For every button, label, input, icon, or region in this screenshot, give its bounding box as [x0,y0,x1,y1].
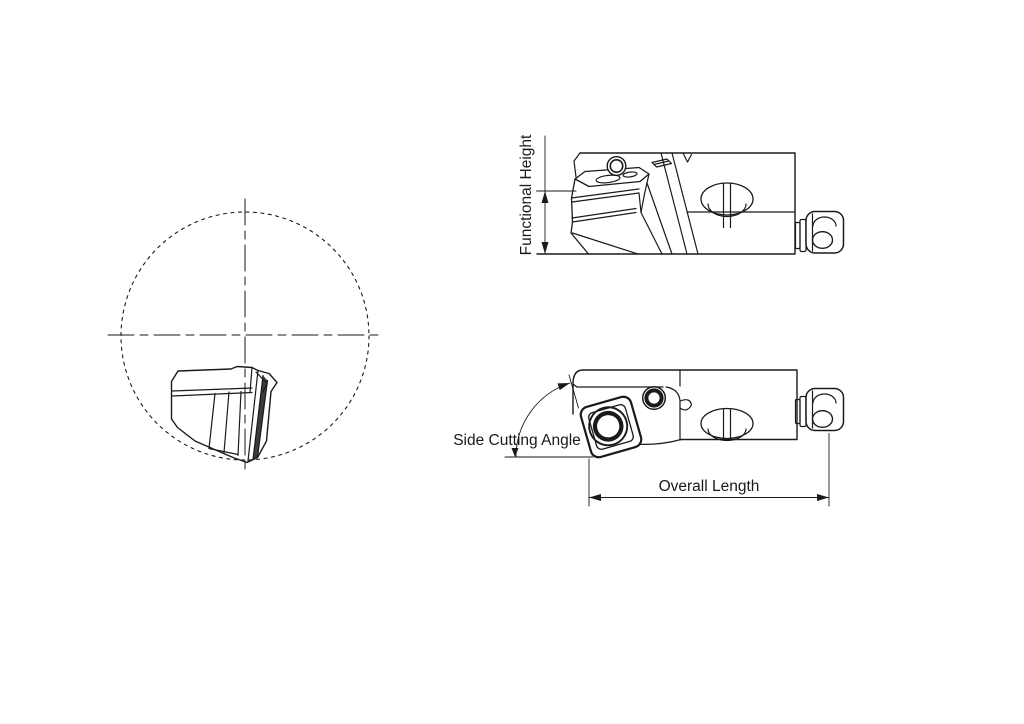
detail-line [173,393,253,397]
pocket-curve [666,387,680,440]
arrowhead-arc [558,383,571,390]
screw-washer [800,220,806,252]
arrowhead-left [589,494,601,501]
wedge-line [641,213,662,255]
insert-band [572,193,639,202]
functional-height-dimension [537,136,577,254]
arrowhead-down [512,448,519,457]
clamp-edge [224,392,229,453]
end-view [108,199,383,474]
counterbore-outer [701,183,753,215]
side-view: Functional Height [518,134,844,255]
screw-washer [796,223,801,249]
arrowhead-down [542,242,549,254]
side-body-left-edge [574,153,580,177]
arrowhead-up [542,191,549,203]
shim-band [572,209,636,219]
adjust-knob [806,389,844,431]
plan-view: Side Cutting Angle Overall Length [453,370,843,506]
plan-step-line [573,384,663,387]
detail-line [639,193,641,213]
screw-washer [800,397,806,427]
technical-drawing: Functional Height [0,0,1024,724]
screw-washer [796,400,801,424]
overall-length-label: Overall Length [659,478,760,495]
indexable-insert [579,395,643,459]
slot-hole-outer [701,409,753,439]
clamp-edge [209,394,215,449]
drawing-canvas: Functional Height [0,0,1024,724]
side-cutting-angle-label: Side Cutting Angle [453,432,581,449]
detail-line [172,388,252,391]
detail-line [250,368,252,393]
chip-deflector-curl [680,400,692,410]
wedge-line [573,233,639,254]
clamp-edge [238,392,241,456]
shim-band [573,213,637,223]
neck-slant [672,153,698,254]
functional-height-label: Functional Height [518,134,535,255]
neck-slant [661,153,687,254]
arrowhead-right [817,494,829,501]
v-notch [684,154,692,162]
insert-band [572,189,640,198]
cartridge-slant [647,183,672,254]
